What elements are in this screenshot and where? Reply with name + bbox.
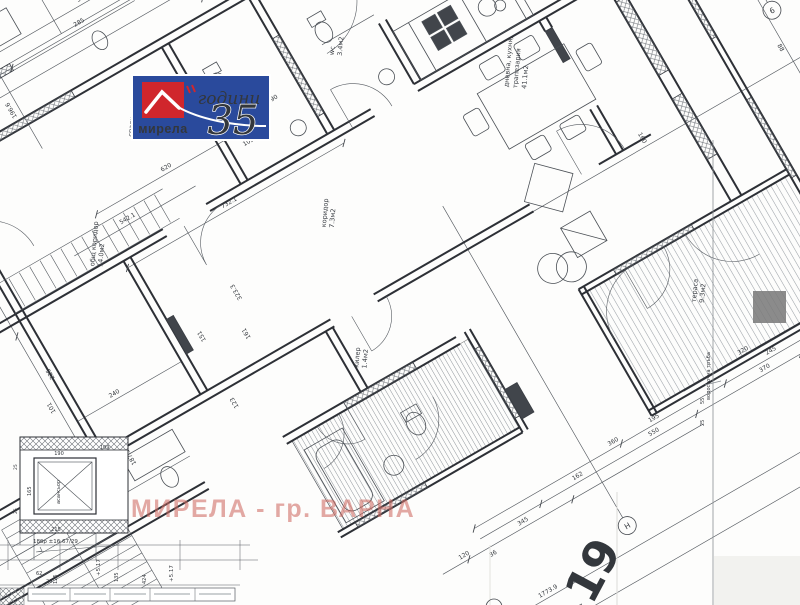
downpipe-label: водосточна тръба: [706, 352, 712, 400]
dim-label: 29: [46, 579, 52, 585]
elevator-dim: 25: [13, 508, 19, 514]
room-label-closet: килер 1.4м2: [352, 347, 370, 369]
room-area: 7.3м2: [328, 208, 338, 228]
elevator-label: асансьор: [56, 480, 62, 504]
logo-brand-text: мирела: [138, 122, 188, 136]
dim-label: 62: [36, 571, 42, 577]
logo-red-square: [142, 82, 184, 118]
redaction-square: [753, 291, 786, 323]
room-area: 9.3м2: [698, 283, 708, 303]
watermark-text: МИРЕЛА - гр. ВАРНА: [131, 495, 415, 523]
floorplan-canvas: 310 274 285 445 365 216 368 188 275 180 …: [0, 0, 800, 605]
dim-label: 109: [100, 445, 110, 451]
dim-label: 25: [700, 420, 706, 426]
elevator-dim: 190: [54, 451, 64, 457]
dim-label: 135: [114, 572, 120, 582]
level-annotation: +5.17: [169, 565, 175, 582]
dim-label: 125: [53, 574, 59, 584]
elevator-dim: 25: [13, 464, 19, 470]
dim-label: 424: [142, 574, 148, 584]
level-annotation: +5.17: [96, 559, 102, 576]
elevator-dim: 215: [51, 527, 61, 533]
logo-years-number: 35: [208, 98, 259, 144]
stairs-note: 18бр ±16.67/29: [33, 539, 78, 545]
elevator-dim: 165: [27, 486, 33, 496]
blueprint-image: 310 274 285 445 365 216 368 188 275 180 …: [0, 0, 800, 605]
room-area: 3.4м2: [336, 36, 346, 56]
agency-logo: мирела години 35: [131, 74, 271, 144]
dim-label: 55: [700, 398, 706, 404]
room-area: 1.4м2: [360, 349, 370, 369]
